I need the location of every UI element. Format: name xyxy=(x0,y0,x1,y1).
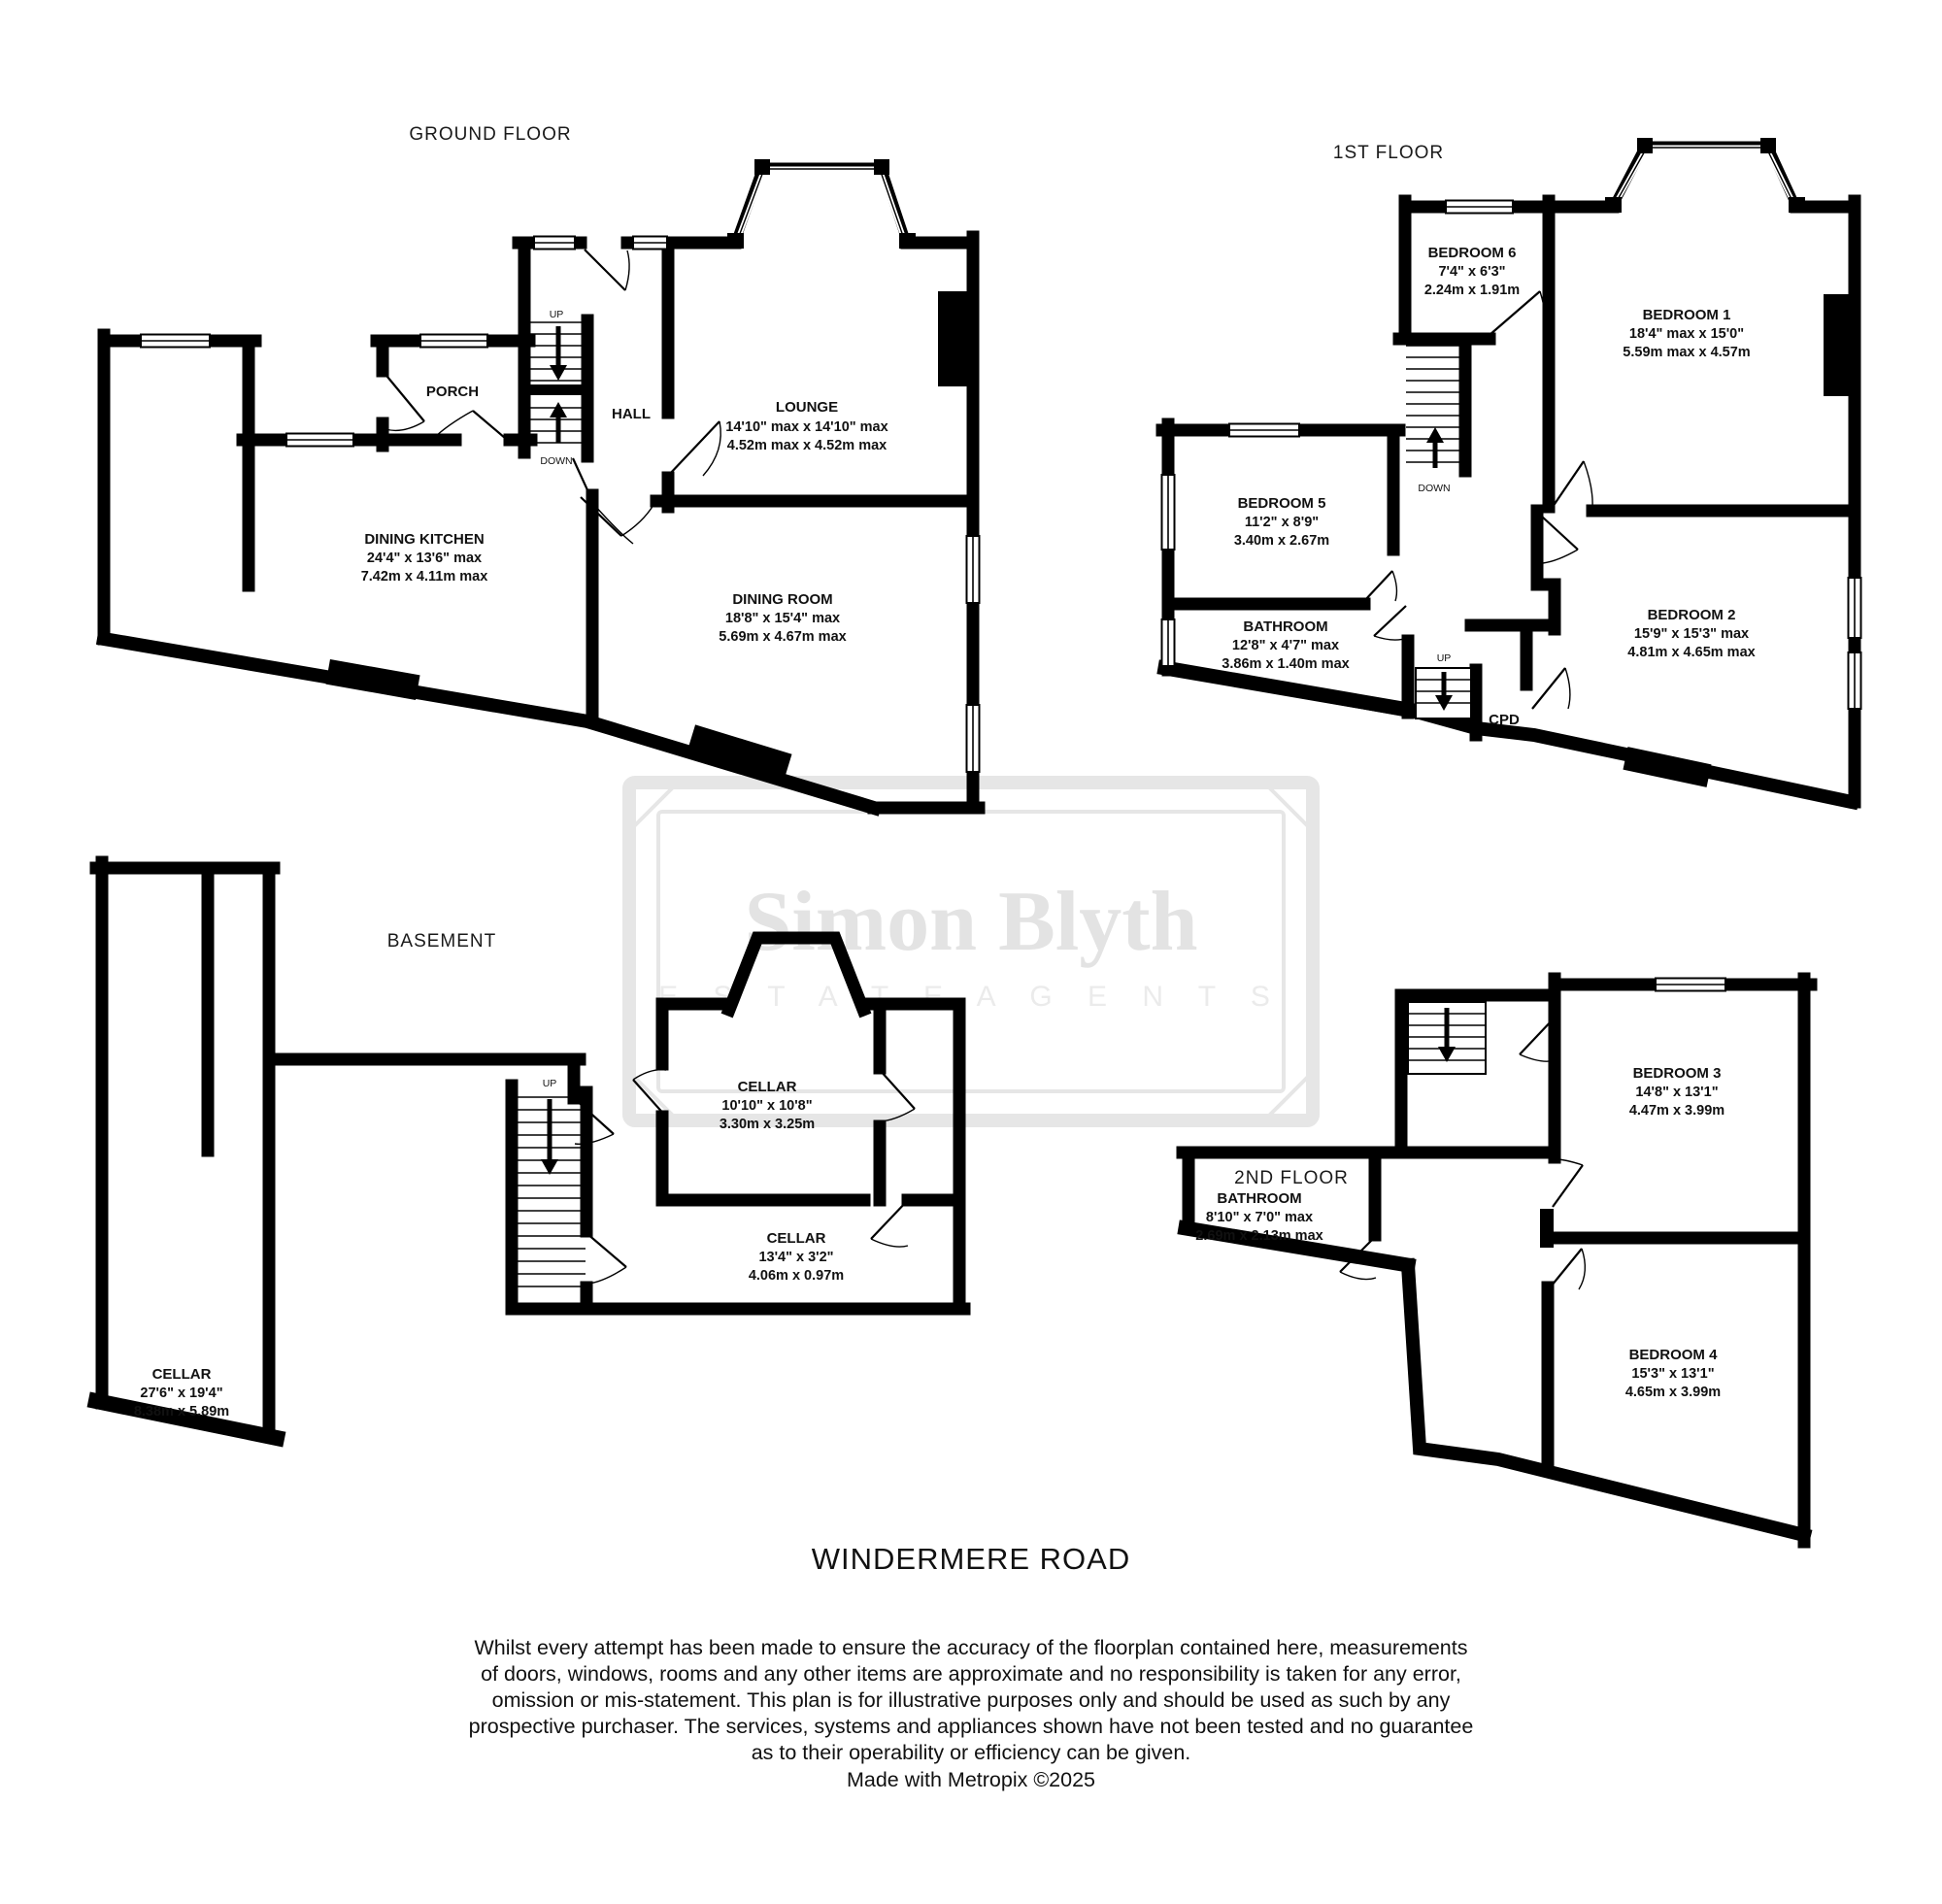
disclaimer-line: Whilst every attempt has been made to en… xyxy=(474,1636,1467,1659)
room-label: BEDROOM 6 xyxy=(1428,245,1517,261)
second-stairs xyxy=(1408,1002,1486,1074)
disclaimer-line: as to their operability or efficiency ca… xyxy=(752,1741,1191,1764)
second-windows xyxy=(1656,979,1725,991)
room-dims: 10'10" x 10'8" xyxy=(721,1098,812,1114)
room-dims: 11'2" x 8'9" xyxy=(1245,515,1319,530)
room-dims: 14'8" x 13'1" xyxy=(1635,1085,1718,1100)
stair-arrow-up-icon xyxy=(1426,427,1444,443)
floor-title-ground: GROUND FLOOR xyxy=(409,124,571,145)
room-dims: 4.06m x 0.97m xyxy=(749,1268,844,1284)
room-label: LOUNGE xyxy=(776,399,838,416)
room-dims: 13'4" x 3'2" xyxy=(758,1250,833,1265)
watermark-text: Simon Blyth xyxy=(744,875,1197,969)
room-dims: 24'4" x 13'6" max xyxy=(367,551,482,566)
first-down-label: DOWN xyxy=(1418,483,1450,494)
first-floor-plan: 1ST FLOOR xyxy=(1162,138,1861,802)
floor-title-first: 1ST FLOOR xyxy=(1333,143,1444,163)
ground-stairs: UP DOWN xyxy=(530,309,586,467)
first-chimneys xyxy=(1623,294,1855,787)
first-room-labels: BEDROOM 6 7'4" x 6'3" 2.24m x 1.91m BEDR… xyxy=(1222,245,1755,728)
second-floor-plan: 2ND FLOOR BEDROOM xyxy=(1183,979,1811,1543)
room-label: BEDROOM 5 xyxy=(1238,495,1326,512)
room-dims: 3.40m x 2.67m xyxy=(1234,533,1329,549)
room-label: BEDROOM 4 xyxy=(1629,1347,1719,1363)
room-label: HALL xyxy=(612,406,651,422)
room-dims: 15'3" x 13'1" xyxy=(1631,1366,1714,1382)
disclaimer-line: prospective purchaser. The services, sys… xyxy=(469,1715,1474,1738)
room-dims: 14'10" max x 14'10" max xyxy=(725,419,887,435)
ground-up-label: UP xyxy=(550,309,564,320)
room-dims: 8.38m x 5.89m xyxy=(134,1404,229,1420)
watermark-subtext: E S T A T E A G E N T S xyxy=(658,981,1284,1013)
room-dims: 18'8" x 15'4" max xyxy=(725,611,840,626)
floor-title-basement: BASEMENT xyxy=(387,931,497,952)
stair-arrow-down-icon xyxy=(550,365,567,381)
first-stairs: DOWN xyxy=(1406,346,1464,494)
bay-window-ground xyxy=(668,159,916,249)
basement-room-labels: CELLAR 27'6" x 19'4" 8.38m x 5.89m CELLA… xyxy=(134,1079,844,1420)
room-label: BATHROOM xyxy=(1243,618,1327,635)
floorplan-page: Simon Blyth E S T A T E A G E N T S GROU… xyxy=(0,0,1942,1904)
credit-line: Made with Metropix ©2025 xyxy=(847,1768,1095,1791)
page-title: WINDERMERE ROAD xyxy=(812,1542,1130,1576)
bay-window-first xyxy=(1550,138,1805,213)
room-label: BATHROOM xyxy=(1217,1190,1301,1207)
room-label: CELLAR xyxy=(738,1079,797,1095)
room-dims: 4.52m max x 4.52m max xyxy=(727,438,887,453)
basement-stairs: UP xyxy=(513,1078,586,1286)
room-dims: 3.30m x 3.25m xyxy=(720,1117,815,1132)
watermark: Simon Blyth E S T A T E A G E N T S xyxy=(629,783,1313,1120)
room-dims: 15'9" x 15'3" max xyxy=(1634,626,1749,642)
room-label: BEDROOM 3 xyxy=(1633,1065,1722,1082)
room-label: CPD xyxy=(1489,712,1520,728)
room-dims: 8'10" x 7'0" max xyxy=(1206,1210,1313,1225)
room-label: PORCH xyxy=(426,384,479,400)
room-dims: 27'6" x 19'4" xyxy=(140,1386,222,1401)
ground-room-labels: LOUNGE 14'10" max x 14'10" max 4.52m max… xyxy=(361,384,888,645)
room-label: BEDROOM 2 xyxy=(1648,607,1736,623)
ground-floor-plan: GROUND FLOOR xyxy=(104,124,980,808)
room-dims: 5.69m x 4.67m max xyxy=(719,629,846,645)
second-outline-lower xyxy=(1408,1265,1804,1535)
room-dims: 4.47m x 3.99m xyxy=(1629,1103,1724,1119)
floor-title-second: 2ND FLOOR xyxy=(1234,1168,1349,1188)
room-dims: 18'4" max x 15'0" xyxy=(1629,326,1744,342)
floorplan-canvas: Simon Blyth E S T A T E A G E N T S GROU… xyxy=(0,0,1942,1904)
room-label: CELLAR xyxy=(152,1366,212,1383)
second-door-post xyxy=(1540,1209,1554,1248)
room-label: DINING KITCHEN xyxy=(364,531,484,548)
room-dims: 5.59m max x 4.57m xyxy=(1623,345,1750,360)
basement-plan: BASEMENT UP xyxy=(96,862,964,1438)
basement-up-label: UP xyxy=(543,1078,557,1089)
first-up-label: UP xyxy=(1437,652,1452,664)
disclaimer-line: omission or mis-statement. This plan is … xyxy=(492,1688,1451,1712)
room-dims: 2.69m x 2.13m max xyxy=(1195,1228,1323,1244)
first-stairs-up: UP xyxy=(1416,652,1471,718)
stair-arrow-up-icon xyxy=(550,402,567,418)
ground-down-label: DOWN xyxy=(540,455,572,467)
room-dims: 3.86m x 1.40m max xyxy=(1222,656,1349,672)
room-dims: 12'8" x 4'7" max xyxy=(1232,638,1339,653)
room-dims: 7.42m x 4.11m max xyxy=(361,569,488,585)
room-label: DINING ROOM xyxy=(732,591,832,608)
room-label: BEDROOM 1 xyxy=(1643,307,1731,323)
room-dims: 7'4" x 6'3" xyxy=(1438,264,1505,280)
room-dims: 4.65m x 3.99m xyxy=(1625,1385,1721,1400)
room-dims: 2.24m x 1.91m xyxy=(1424,283,1520,298)
disclaimer-line: of doors, windows, rooms and any other i… xyxy=(481,1662,1461,1686)
room-label: CELLAR xyxy=(767,1230,826,1247)
room-dims: 4.81m x 4.65m max xyxy=(1627,645,1755,660)
disclaimer-block: Whilst every attempt has been made to en… xyxy=(469,1636,1474,1791)
